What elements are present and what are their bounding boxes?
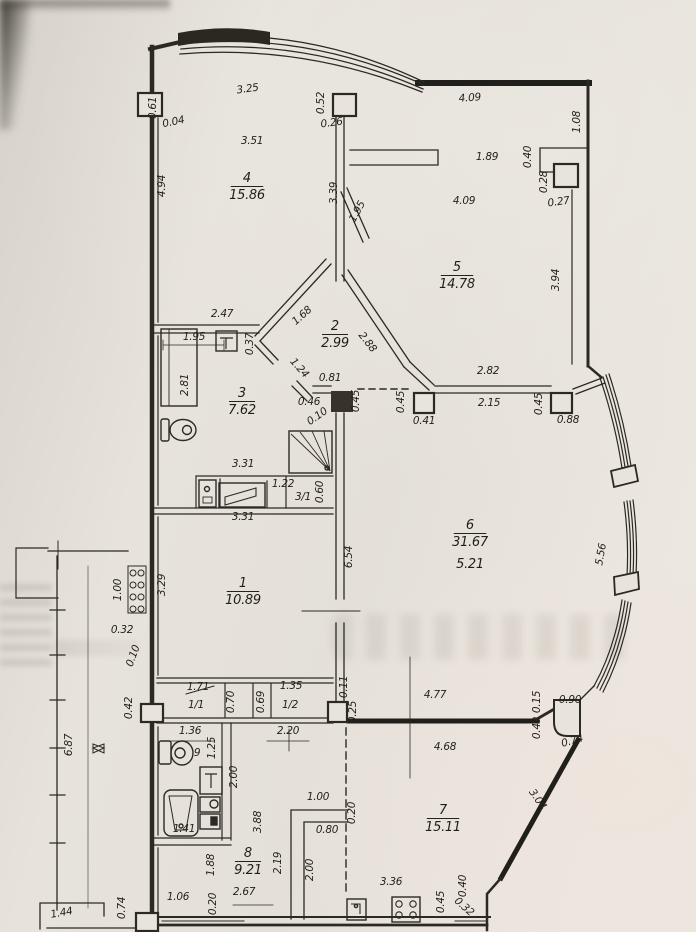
floor-plan-drawing: 3.250.610.043.514.940.520.263.391.952.47…: [0, 0, 696, 932]
dimension-label: 1.89: [476, 151, 499, 163]
room-number: 6: [466, 518, 474, 533]
dimension-label: 3.25: [236, 81, 260, 96]
room-area: 15.86: [229, 188, 265, 203]
damper-icon: [93, 744, 104, 753]
dimension-label: 0.32: [111, 624, 134, 636]
dimension-label: 3.94: [550, 269, 562, 291]
room-labels: 415.86514.7822.9937.62110.89631.675.2171…: [225, 171, 489, 878]
dimension-label: 0.88: [557, 414, 580, 426]
dimension-label: 0.80: [316, 824, 339, 836]
dimension-label: 3.29: [156, 573, 168, 596]
room-area-secondary: 5.21: [456, 557, 484, 572]
room-number: 8: [244, 846, 252, 861]
stove-icon: [392, 897, 420, 922]
counter-icon: [219, 483, 265, 507]
dimension-label: 1.25: [206, 736, 218, 759]
dimension-label: 1/2: [282, 699, 299, 711]
toilet-icon: [159, 741, 193, 765]
dimension-label: 0.46: [298, 396, 321, 408]
toilet-icon: [161, 419, 196, 441]
dimension-label: 4.09: [453, 195, 476, 207]
dimension-label: 0.28: [538, 170, 550, 193]
radiator-icon: [128, 566, 146, 613]
room-2-label: 22.99: [321, 319, 349, 351]
dimension-label: 0.26: [320, 115, 344, 130]
dimension-label: 0.60: [314, 480, 326, 503]
dimension-label: 1.08: [571, 110, 583, 133]
dimension-label: 0.40: [522, 145, 534, 168]
dimension-label: 0.69: [255, 690, 267, 713]
dimension-labels: 3.250.610.043.514.940.520.263.391.952.47…: [50, 81, 609, 920]
dimension-label: 0.70: [225, 690, 237, 713]
dimension-label: 2.88: [356, 330, 379, 355]
dimension-label: 9: [194, 747, 201, 759]
dimension-label: 1.35: [280, 680, 303, 692]
dimension-label: 0.81: [319, 372, 341, 384]
room-area: 10.89: [225, 593, 261, 608]
dimension-label: 2.81: [179, 374, 191, 396]
dimension-label: 0.45: [395, 390, 407, 413]
dimension-label: 2.00: [228, 765, 240, 788]
dimension-label: 3.36: [380, 876, 403, 888]
dimension-label: 1.44: [50, 905, 74, 921]
vent-box-icon: [216, 331, 237, 351]
washbasin-icon: [200, 767, 222, 794]
dimension-label: 3/1: [295, 491, 311, 503]
dimension-label: 3.51: [241, 135, 263, 147]
dimension-label: 0.45: [350, 389, 362, 412]
dimension-label: 2.82: [477, 365, 500, 377]
dimension-label: 0.49: [531, 716, 543, 739]
dimension-label: 0.90: [559, 694, 582, 706]
dimension-label: 4.68: [434, 741, 457, 753]
dimension-label: 1.41: [173, 823, 195, 835]
room-number: 4: [243, 171, 251, 186]
dimension-label: 0.10: [124, 643, 143, 669]
dimension-label: 2.47: [211, 308, 234, 320]
dimension-label: 0.32: [452, 895, 477, 919]
room-area: 9.21: [234, 863, 262, 878]
room-1-label: 110.89: [225, 576, 261, 608]
washbasin-icon: [199, 480, 216, 507]
dimension-label: 2.00: [304, 858, 316, 881]
dimension-label: 0.74: [116, 897, 128, 919]
dimension-label: 1.22: [272, 478, 295, 490]
dimension-label: 0.45: [435, 890, 447, 913]
room-number: 7: [439, 803, 448, 818]
dimension-label: 1.68: [290, 303, 315, 327]
dimension-label: 1.71: [187, 681, 209, 693]
dimension-label: 0.20: [207, 892, 219, 915]
room-8-label: 89.21: [234, 846, 262, 878]
dimension-label: 2.20: [277, 725, 300, 737]
dimension-label: 3.31: [232, 458, 254, 470]
dimension-label: 1.88: [205, 853, 217, 876]
room-area: 15.11: [425, 820, 461, 835]
dimension-label: 1.00: [112, 578, 124, 601]
dimension-label: 1/1: [188, 699, 204, 711]
room-area: 2.99: [321, 336, 349, 351]
dimension-label: 0.52: [315, 91, 327, 114]
room-number: 5: [453, 260, 461, 275]
dimension-label: 4.77: [424, 689, 447, 701]
dimension-label: 3.04: [526, 787, 549, 812]
dimension-label: 0.40: [457, 874, 469, 897]
dimension-label: 1.36: [179, 725, 202, 737]
room-6-label: 631.675.21: [452, 518, 489, 572]
dimension-label: 3.88: [252, 810, 264, 833]
dimension-label: 1.95: [347, 198, 368, 224]
room-area: 14.78: [439, 277, 475, 292]
room-4-label: 415.86: [229, 171, 265, 203]
dimension-label: 1.95: [183, 331, 206, 343]
dimension-label: 0.11: [338, 676, 350, 698]
room-3-label: 37.62: [228, 386, 256, 418]
dimension-label: 3.39: [328, 181, 340, 204]
room-area: 7.62: [228, 403, 256, 418]
dimension-label: 2.19: [272, 851, 284, 874]
dimension-label: 6.87: [63, 733, 75, 756]
shower-icon: [289, 431, 332, 473]
dimension-label: 2.15: [478, 397, 501, 409]
dimension-label: 4.09: [458, 91, 482, 105]
washing-machine-icon: [200, 797, 220, 829]
dimension-label: 0.61: [147, 97, 159, 119]
dimension-label: 4.94: [156, 175, 168, 197]
room-number: 3: [238, 386, 246, 401]
dimension-label: 0.27: [547, 194, 571, 209]
dimension-label: 0.10: [305, 405, 331, 428]
room-area: 31.67: [452, 535, 489, 550]
dimension-label: 1.00: [307, 791, 330, 803]
dimension-label: 0.25: [347, 700, 359, 723]
dimension-label: 6.54: [343, 546, 355, 568]
dimension-label: 5.56: [593, 542, 609, 567]
dimension-label: 1.24: [287, 356, 311, 381]
room-5-label: 514.78: [439, 260, 475, 292]
dimension-label: 0.41: [413, 415, 435, 427]
dimension-label: 0.20: [346, 801, 358, 824]
room-7-label: 715.11: [425, 803, 461, 835]
dimension-label: 1.06: [167, 891, 190, 903]
dimension-label: 0.45: [533, 392, 545, 415]
dimension-label: 0.37: [244, 332, 256, 355]
room-number: 1: [239, 576, 247, 591]
room-number: 2: [331, 319, 339, 334]
dimension-label: 2.67: [233, 886, 256, 898]
dimension-label: 0.04: [161, 114, 185, 130]
dimension-label: 3.31: [232, 511, 254, 523]
dimension-label: 0.42: [123, 696, 135, 719]
dimension-label: 0.15: [531, 690, 543, 713]
floor-plan-scan: 3.250.610.043.514.940.520.263.391.952.47…: [0, 0, 696, 932]
